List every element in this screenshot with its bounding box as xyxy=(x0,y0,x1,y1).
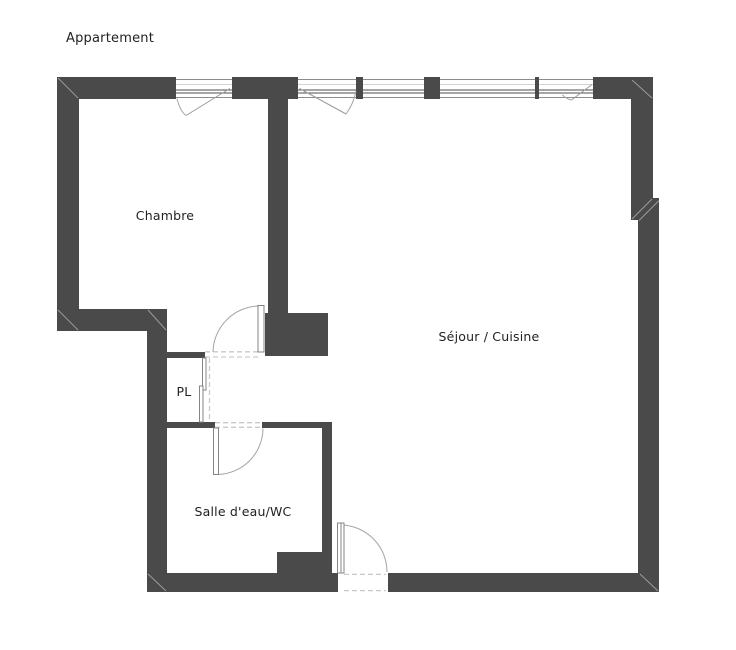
entry-door-swing-arc xyxy=(343,525,388,572)
room-label-salle-eau-wc: Salle d'eau/WC xyxy=(195,504,292,519)
room-area-hallway xyxy=(210,358,322,422)
wall-bottom-west xyxy=(147,573,338,592)
room-area-chambre xyxy=(79,99,268,309)
entry-door xyxy=(338,523,388,591)
floor-plan-svg: Appartement xyxy=(0,0,736,650)
chambre-door-leaf xyxy=(258,306,264,353)
closet-sliding-door xyxy=(200,358,210,422)
room-labels: Chambre Séjour / Cuisine PL Salle d'eau/… xyxy=(136,208,540,519)
window-1 xyxy=(176,78,232,116)
walls xyxy=(57,77,659,592)
wall-bath-top-east xyxy=(262,422,330,428)
window-3 xyxy=(363,78,424,100)
chambre-door xyxy=(205,306,264,358)
room-label-placard: PL xyxy=(177,384,192,399)
window-5-opening xyxy=(539,78,593,100)
room-area-salle-eau-wc xyxy=(167,428,322,552)
wall-top-segment-2 xyxy=(232,77,298,99)
wall-closet-top xyxy=(167,352,205,358)
window-4-opening xyxy=(440,78,535,100)
closet-door-panel-1 xyxy=(203,358,207,390)
window-1-casement-arc xyxy=(177,99,186,116)
bathroom-door xyxy=(214,423,264,475)
window-2-opening xyxy=(298,78,356,100)
wall-top-mullion-1 xyxy=(356,77,363,99)
bathroom-door-swing-arc xyxy=(219,429,264,475)
page-title: Appartement xyxy=(66,31,154,46)
window-2 xyxy=(298,78,356,115)
chambre-door-swing-arc xyxy=(213,306,258,352)
bathroom-door-leaf xyxy=(214,428,219,475)
wall-right-lower xyxy=(638,198,659,592)
wall-bath-top-west xyxy=(167,422,215,428)
wall-bath-duct-block xyxy=(277,552,332,573)
window-1-opening xyxy=(176,78,232,100)
wall-hall-west xyxy=(147,309,167,592)
room-label-chambre: Chambre xyxy=(136,208,194,223)
floor-plan-page: Appartement xyxy=(0,0,736,650)
wall-top-pier xyxy=(424,77,440,99)
wall-top-mullion-2 xyxy=(535,77,539,99)
wall-bath-east xyxy=(322,422,332,573)
window-4 xyxy=(440,78,535,100)
window-3-opening xyxy=(363,78,424,100)
wall-bottom-east xyxy=(388,573,659,592)
window-5 xyxy=(539,78,593,101)
room-label-sejour-cuisine: Séjour / Cuisine xyxy=(439,329,540,344)
wall-left xyxy=(57,77,79,331)
wall-stub-hall xyxy=(265,313,328,356)
wall-chambre-sejour xyxy=(268,99,288,315)
closet-door-panel-2 xyxy=(200,386,204,422)
